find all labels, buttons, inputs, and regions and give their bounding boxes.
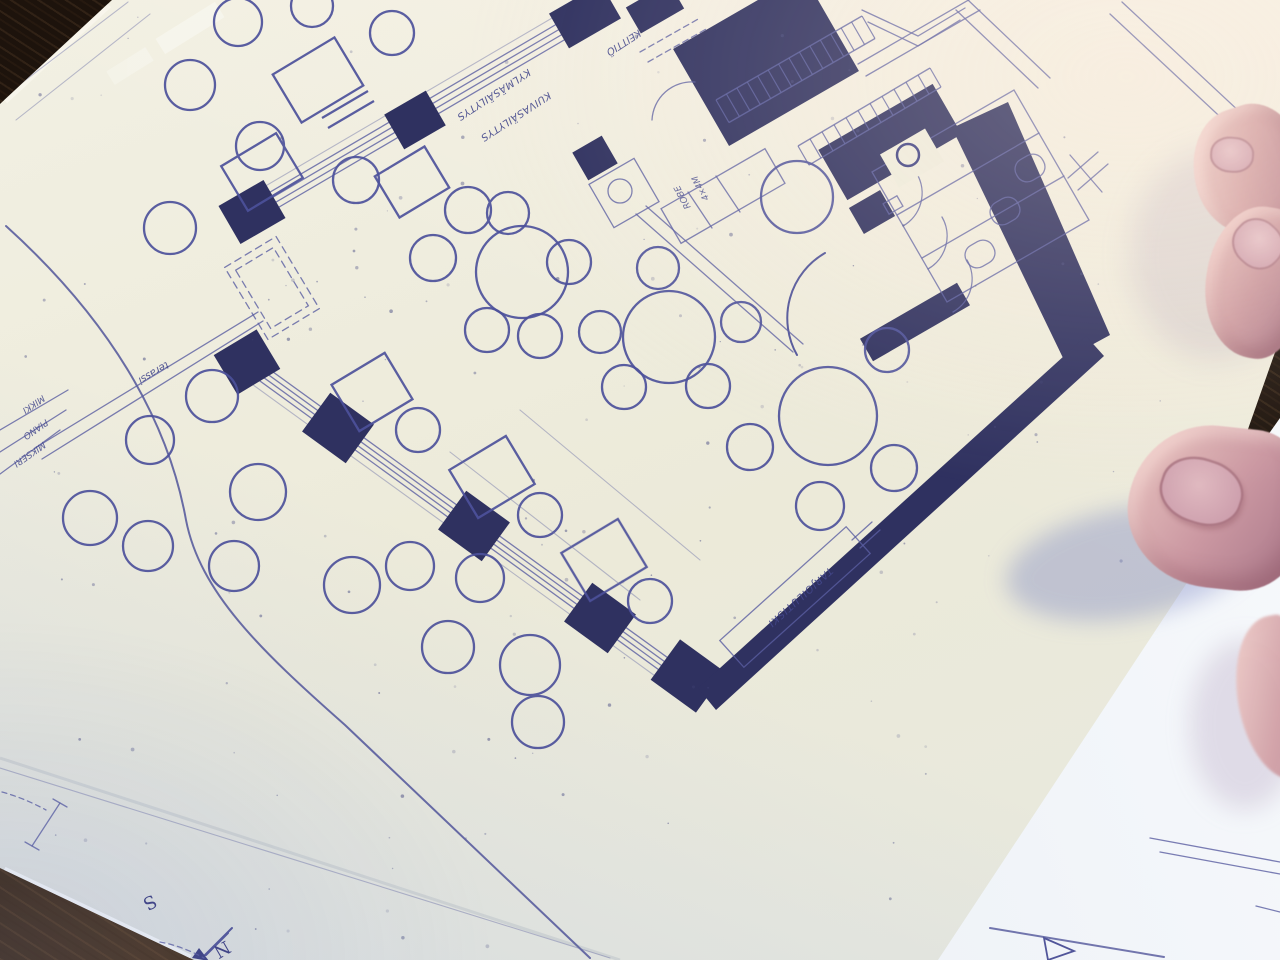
kitchen-label: KEITTIÖ xyxy=(604,27,644,59)
dimension-marks xyxy=(25,799,67,850)
margin-note-3: MIKSERI xyxy=(11,439,47,468)
round-table xyxy=(476,226,568,318)
paper-edge-highlight xyxy=(4,2,224,958)
square-table xyxy=(375,146,449,217)
round-tables xyxy=(476,161,877,465)
tape-strip xyxy=(106,47,153,85)
stage-edge xyxy=(35,312,263,459)
thumbnail xyxy=(1151,447,1251,536)
margin-note-1: MIKKI xyxy=(20,392,46,415)
round-table xyxy=(779,367,877,465)
terrace-boundary-curve xyxy=(6,226,590,958)
floor-seam xyxy=(520,410,700,560)
terrace-seating xyxy=(63,0,564,748)
dining-chairs xyxy=(333,157,917,623)
margin-note-2: PIANO xyxy=(21,416,50,440)
kitchen-door-arc xyxy=(652,82,695,120)
terrace-table xyxy=(273,37,364,122)
dining-door-arc xyxy=(787,253,825,355)
square-table xyxy=(561,519,646,601)
rack-label-1: 4×4M xyxy=(690,174,712,203)
window-tick-marks xyxy=(1068,152,1108,192)
compass-south-letter: S xyxy=(139,890,160,914)
sink-basin-icon xyxy=(608,179,632,203)
photo-scene: S N KYLMÄSÄILYTYS KUIVASÄILYTYS xyxy=(0,0,1280,960)
round-table xyxy=(761,161,833,233)
compass-north-letter: N xyxy=(210,936,234,960)
thick-walls xyxy=(673,0,1110,710)
fingernail xyxy=(1223,209,1280,280)
fingernail xyxy=(1209,135,1255,174)
